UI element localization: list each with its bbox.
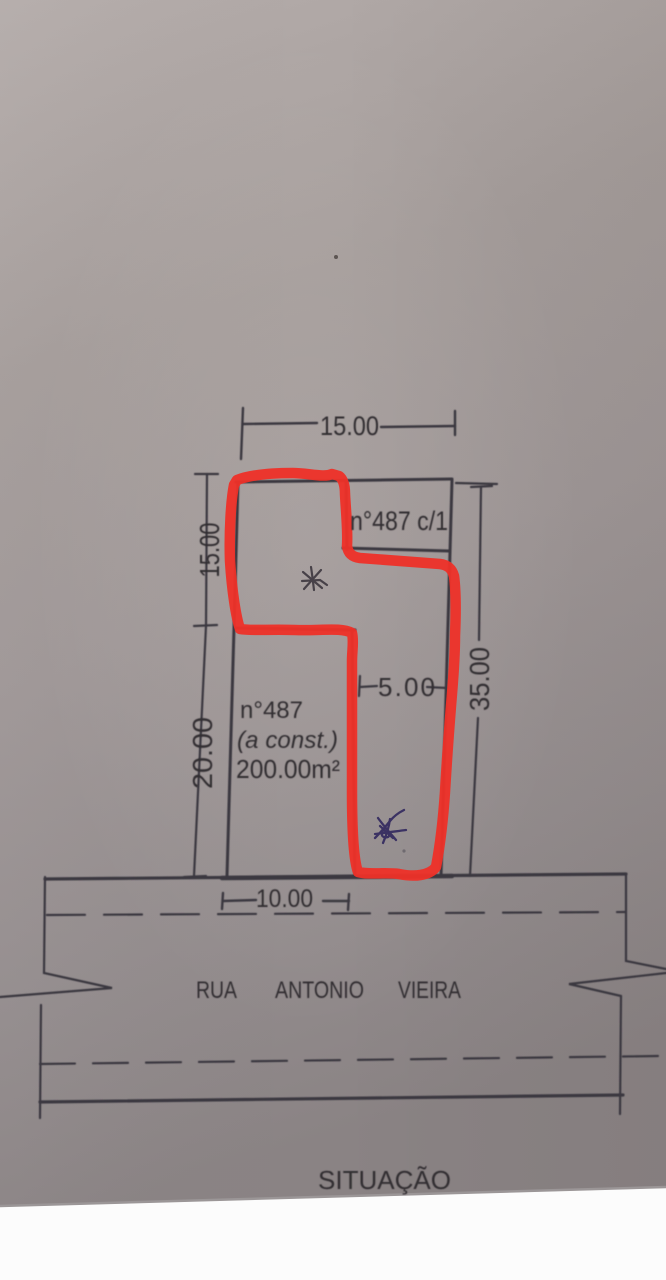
- svg-text:ANTONIO: ANTONIO: [275, 977, 364, 1004]
- svg-text:SITUAÇÃO: SITUAÇÃO: [318, 1165, 451, 1195]
- svg-text:10.00: 10.00: [256, 885, 313, 913]
- svg-text:VIEIRA: VIEIRA: [398, 977, 461, 1004]
- svg-text:n°487: n°487: [240, 697, 303, 724]
- svg-text:(a const.): (a const.): [237, 727, 338, 754]
- svg-text:RUA: RUA: [196, 977, 237, 1004]
- svg-text:15.00: 15.00: [320, 411, 379, 441]
- svg-text:n°487 c/1: n°487 c/1: [350, 506, 448, 536]
- svg-text:5.00: 5.00: [378, 672, 435, 702]
- svg-text:35.00: 35.00: [464, 647, 495, 711]
- svg-text:20.00: 20.00: [187, 717, 218, 789]
- svg-text:15.00: 15.00: [194, 523, 225, 578]
- svg-text:200.00m²: 200.00m²: [236, 754, 340, 784]
